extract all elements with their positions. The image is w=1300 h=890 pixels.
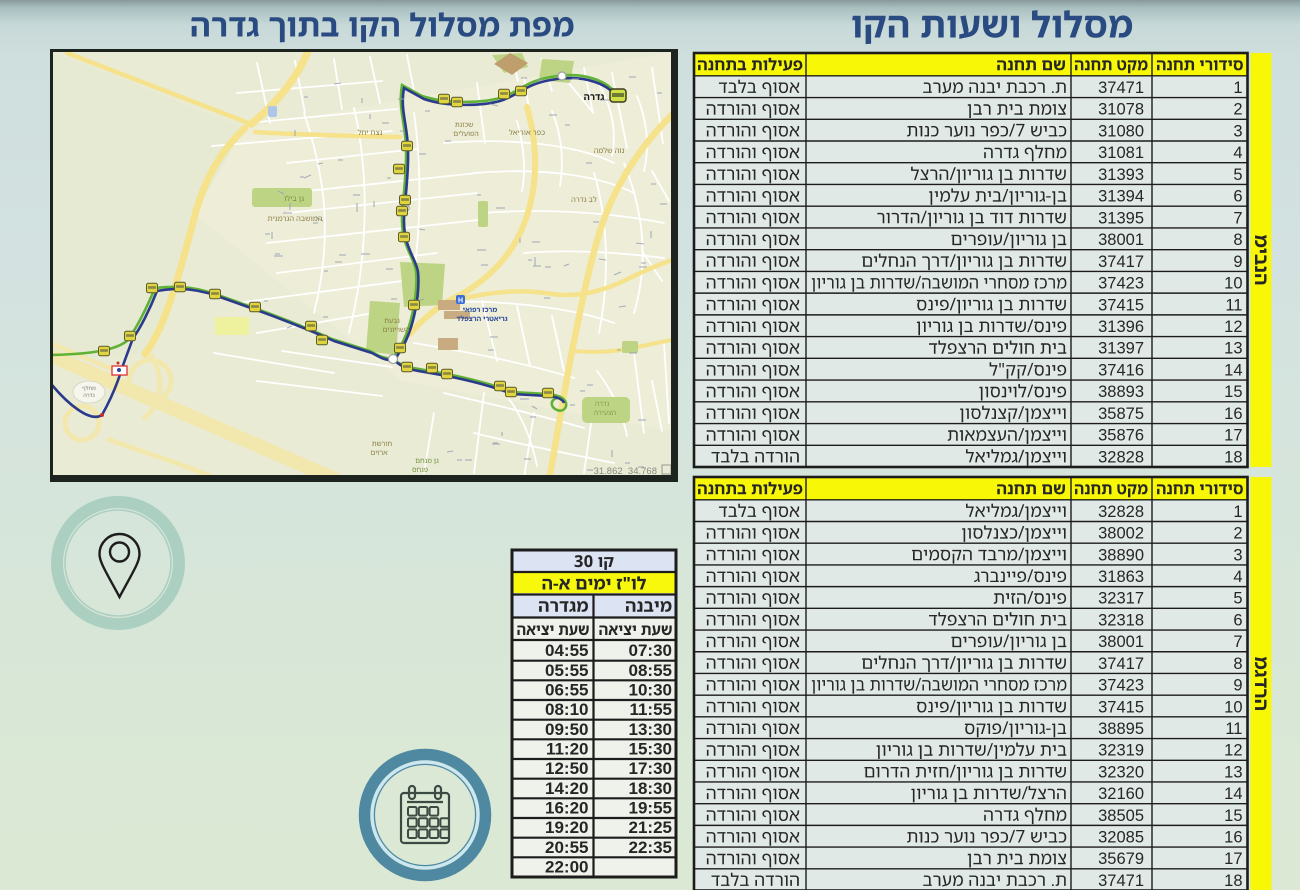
svg-text:3: 3 <box>1233 122 1242 140</box>
svg-text:31080: 31080 <box>1098 122 1144 140</box>
svg-text:11: 11 <box>1225 296 1242 314</box>
svg-text:1: 1 <box>1233 503 1242 521</box>
svg-text:31394: 31394 <box>1098 188 1144 206</box>
svg-text:12: 12 <box>1224 742 1242 760</box>
svg-text:38002: 38002 <box>1098 525 1144 543</box>
svg-text:31863: 31863 <box>1098 568 1144 586</box>
svg-text:31393: 31393 <box>1098 166 1144 184</box>
svg-text:06:55: 06:55 <box>545 681 588 700</box>
svg-text:31397: 31397 <box>1098 340 1144 358</box>
svg-text:5: 5 <box>1233 590 1242 608</box>
svg-text:15:30: 15:30 <box>629 740 672 759</box>
svg-text:37417: 37417 <box>1098 655 1144 673</box>
svg-text:32828: 32828 <box>1098 448 1144 466</box>
svg-text:15: 15 <box>1224 807 1242 825</box>
svg-text:32320: 32320 <box>1098 763 1144 781</box>
svg-text:18: 18 <box>1224 448 1242 466</box>
svg-text:13:30: 13:30 <box>629 720 672 739</box>
svg-text:37415: 37415 <box>1098 296 1144 314</box>
svg-text:14:20: 14:20 <box>545 779 588 798</box>
svg-text:18: 18 <box>1224 872 1242 890</box>
svg-text:17:30: 17:30 <box>629 759 672 778</box>
svg-text:20:55: 20:55 <box>545 838 588 857</box>
svg-text:38505: 38505 <box>1098 807 1144 825</box>
svg-text:13: 13 <box>1224 763 1242 781</box>
svg-text:32160: 32160 <box>1098 785 1144 803</box>
svg-text:32318: 32318 <box>1098 611 1144 629</box>
svg-text:14: 14 <box>1224 785 1242 803</box>
svg-text:2: 2 <box>1233 101 1242 119</box>
svg-text:9: 9 <box>1233 253 1242 271</box>
svg-text:37423: 37423 <box>1098 275 1144 293</box>
svg-text:38893: 38893 <box>1098 383 1144 401</box>
svg-text:38895: 38895 <box>1098 720 1144 738</box>
svg-text:21:25: 21:25 <box>629 818 672 837</box>
svg-text:38890: 38890 <box>1098 546 1144 564</box>
svg-text:22:35: 22:35 <box>629 838 672 857</box>
svg-text:15: 15 <box>1224 383 1242 401</box>
svg-text:10: 10 <box>1224 275 1242 293</box>
svg-text:5: 5 <box>1233 166 1242 184</box>
svg-text:37423: 37423 <box>1098 677 1144 695</box>
svg-text:4: 4 <box>1233 144 1242 162</box>
svg-text:18:30: 18:30 <box>629 779 672 798</box>
svg-text:19:55: 19:55 <box>629 799 672 818</box>
svg-text:17: 17 <box>1224 427 1242 445</box>
svg-text:31081: 31081 <box>1098 144 1144 162</box>
svg-text:35679: 35679 <box>1098 850 1144 868</box>
svg-text:07:30: 07:30 <box>629 641 672 660</box>
svg-text:13: 13 <box>1224 340 1242 358</box>
svg-text:14: 14 <box>1224 362 1242 380</box>
svg-text:16:20: 16:20 <box>545 799 588 818</box>
svg-text:32828: 32828 <box>1098 503 1144 521</box>
svg-text:32085: 32085 <box>1098 829 1144 847</box>
svg-text:04:55: 04:55 <box>545 641 588 660</box>
svg-text:38001: 38001 <box>1098 633 1144 651</box>
svg-text:08:55: 08:55 <box>629 661 672 680</box>
svg-text:12:50: 12:50 <box>545 759 588 778</box>
svg-text:08:10: 08:10 <box>545 700 588 719</box>
svg-text:37417: 37417 <box>1098 253 1144 271</box>
svg-text:22:00: 22:00 <box>545 858 588 877</box>
svg-text:31395: 31395 <box>1098 209 1144 227</box>
svg-text:16: 16 <box>1224 829 1242 847</box>
svg-text:17: 17 <box>1224 850 1242 868</box>
svg-text:38001: 38001 <box>1098 231 1144 249</box>
svg-text:31396: 31396 <box>1098 318 1144 336</box>
svg-text:4: 4 <box>1233 568 1242 586</box>
svg-text:9: 9 <box>1233 677 1242 695</box>
svg-text:12: 12 <box>1224 318 1242 336</box>
svg-text:31078: 31078 <box>1098 101 1144 119</box>
svg-text:3: 3 <box>1233 546 1242 564</box>
svg-text:35875: 35875 <box>1098 405 1144 423</box>
svg-text:32319: 32319 <box>1098 742 1144 760</box>
svg-text:37416: 37416 <box>1098 362 1144 380</box>
svg-text:11: 11 <box>1225 720 1242 738</box>
svg-text:37415: 37415 <box>1098 698 1144 716</box>
svg-text:10: 10 <box>1224 698 1242 716</box>
svg-text:11:20: 11:20 <box>546 740 589 759</box>
svg-text:35876: 35876 <box>1098 427 1144 445</box>
svg-text:8: 8 <box>1233 655 1242 673</box>
svg-text:6: 6 <box>1233 611 1242 629</box>
svg-text:05:55: 05:55 <box>545 661 588 680</box>
svg-text:H: H <box>458 298 463 305</box>
svg-text:11:55: 11:55 <box>629 700 672 719</box>
svg-text:32317: 32317 <box>1098 590 1144 608</box>
svg-text:10:30: 10:30 <box>629 681 672 700</box>
svg-text:6: 6 <box>1233 188 1242 206</box>
svg-text:37471: 37471 <box>1098 79 1144 97</box>
svg-text:09:50: 09:50 <box>545 720 588 739</box>
svg-text:16: 16 <box>1224 405 1242 423</box>
svg-text:2: 2 <box>1233 525 1242 543</box>
svg-text:19:20: 19:20 <box>545 818 588 837</box>
svg-text:7: 7 <box>1233 633 1242 651</box>
svg-text:1: 1 <box>1233 79 1242 97</box>
svg-text:37471: 37471 <box>1098 872 1144 890</box>
svg-text:8: 8 <box>1233 231 1242 249</box>
svg-text:7: 7 <box>1233 209 1242 227</box>
